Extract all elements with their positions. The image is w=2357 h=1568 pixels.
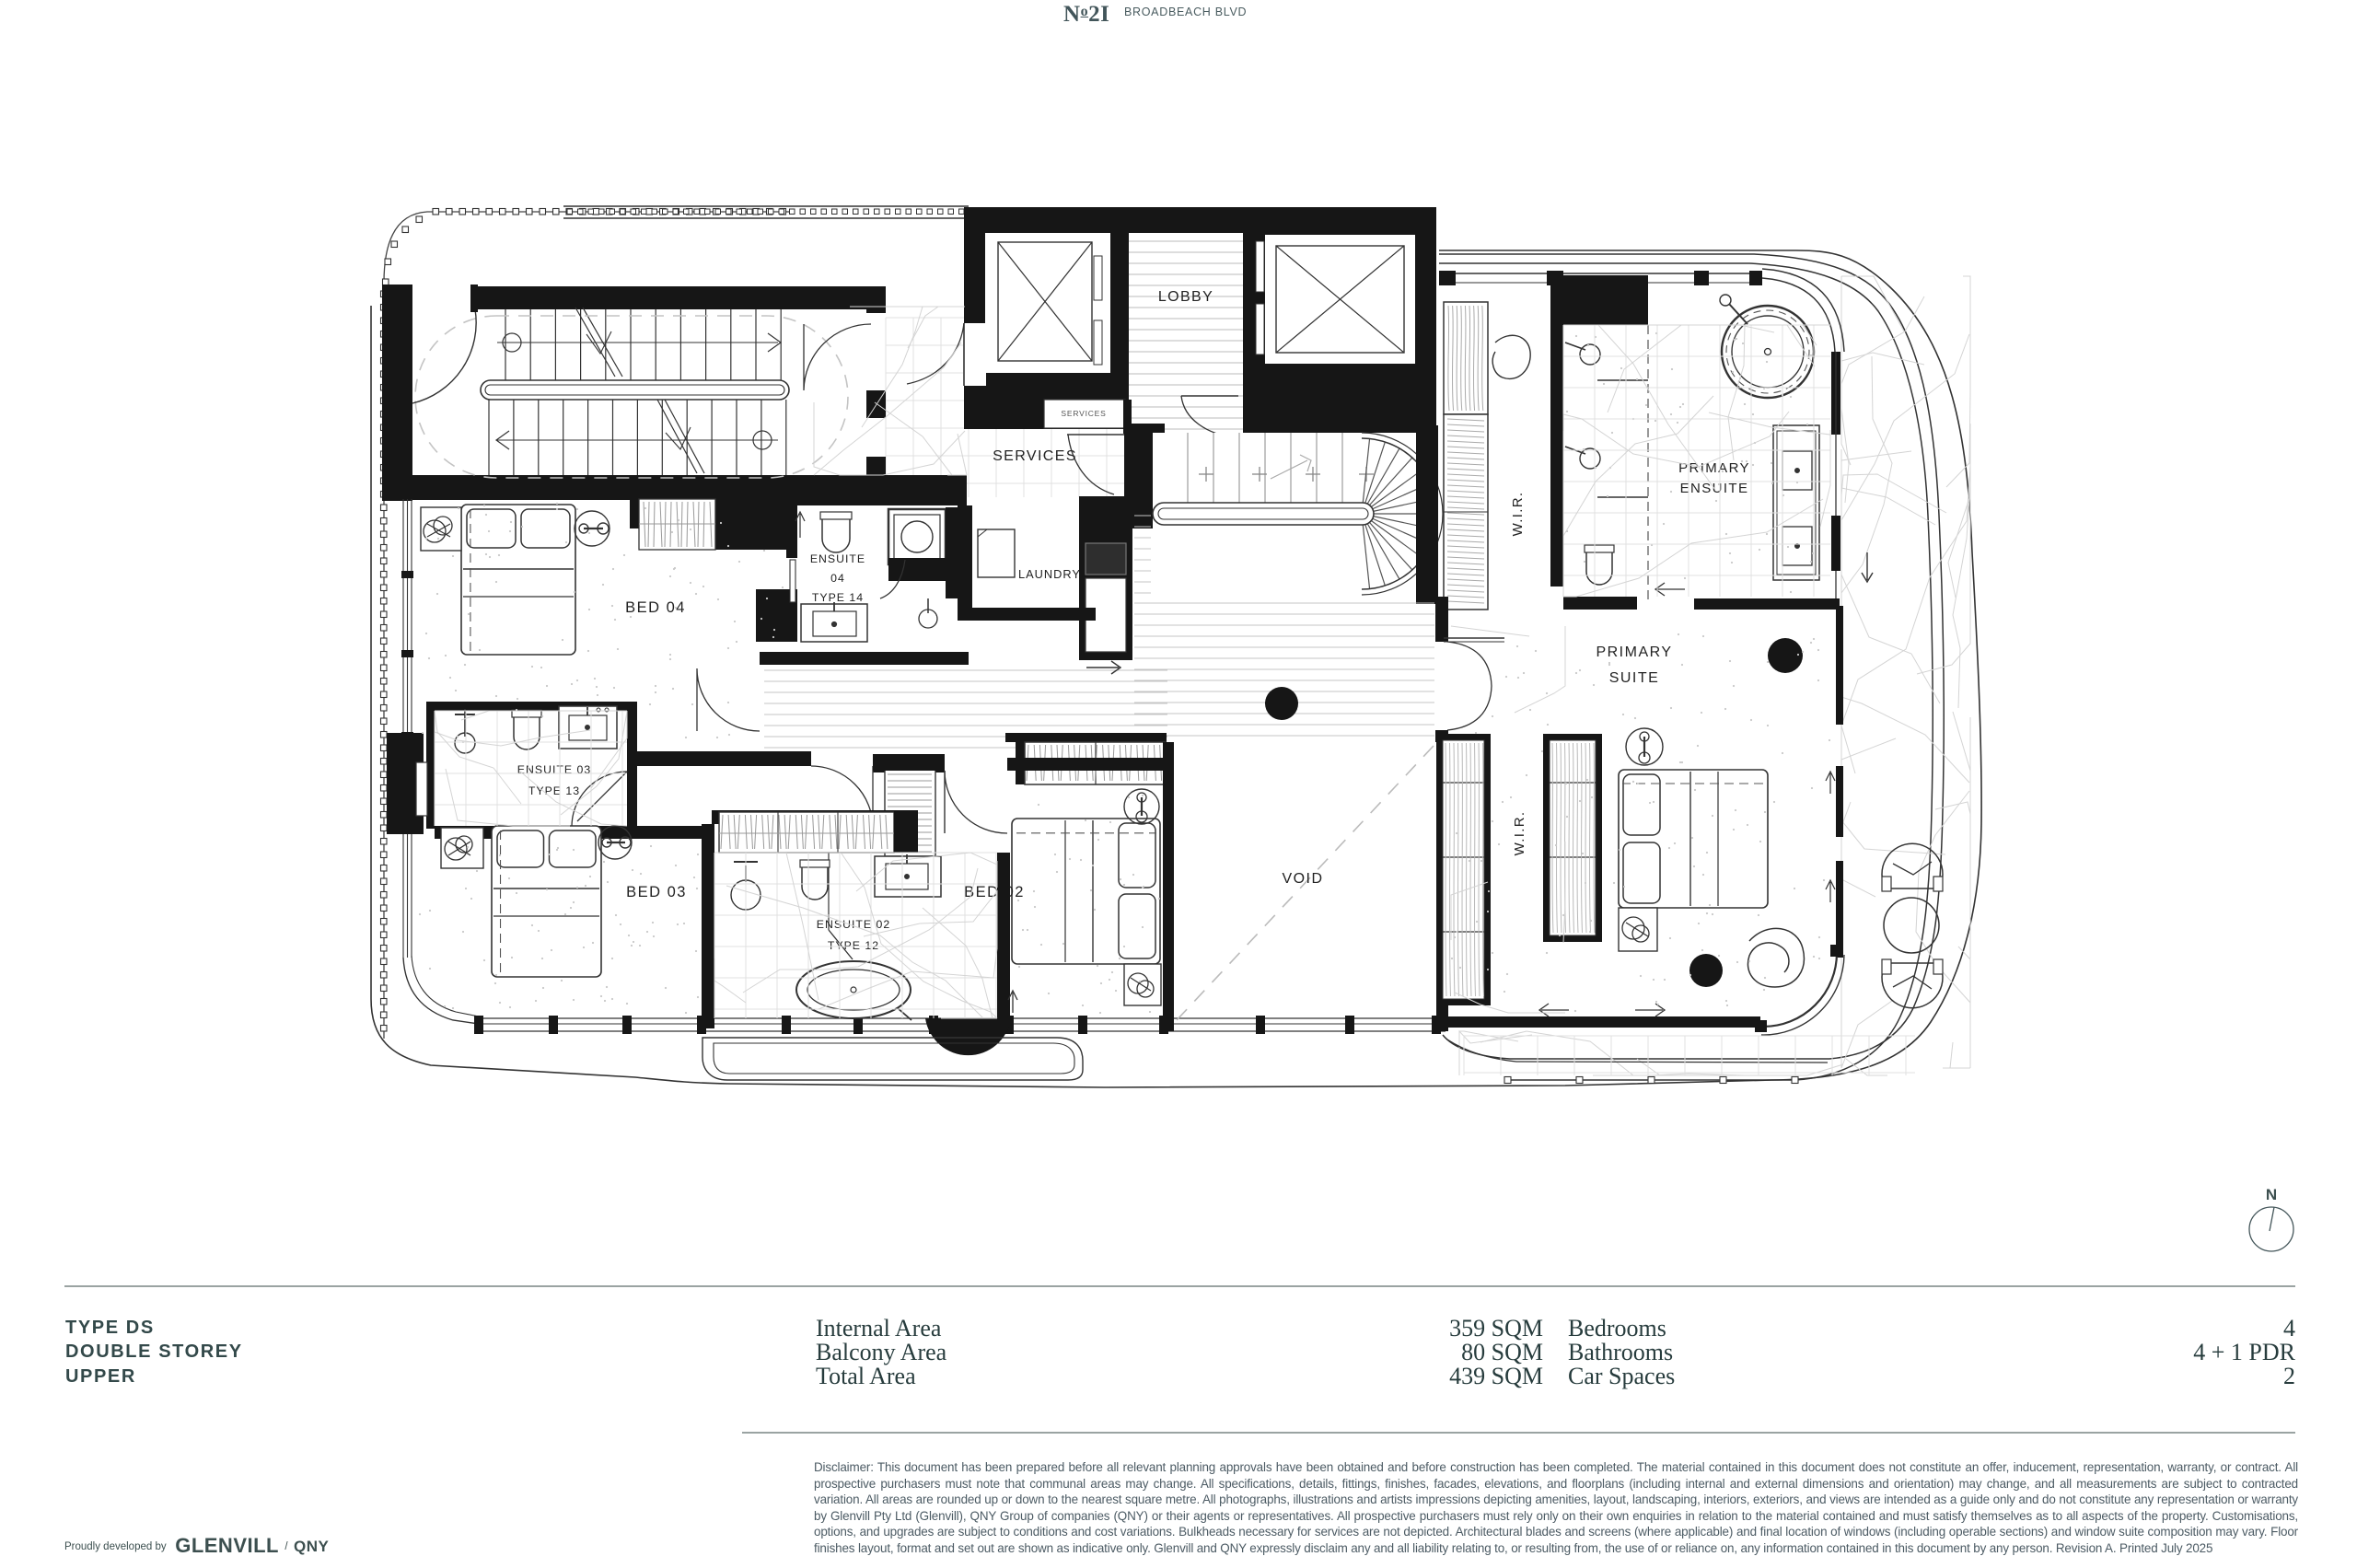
svg-text:W.I.R.: W.I.R. [1512,811,1527,856]
svg-text:SERVICES: SERVICES [1061,409,1106,418]
svg-text:ENSUITE 02: ENSUITE 02 [817,918,890,931]
svg-text:PRIMARY: PRIMARY [1596,645,1672,660]
svg-text:ENSUITE: ENSUITE [810,552,865,565]
svg-text:04: 04 [830,572,845,585]
svg-text:TYPE 14: TYPE 14 [812,591,864,604]
svg-text:W.I.R.: W.I.R. [1510,492,1526,537]
svg-text:LOBBY: LOBBY [1158,289,1213,305]
svg-text:TYPE 12: TYPE 12 [828,939,879,952]
svg-text:PRIMARY: PRIMARY [1678,460,1750,476]
svg-text:SUITE: SUITE [1609,670,1660,686]
svg-text:SERVICES: SERVICES [993,448,1077,464]
svg-text:N: N [2266,1186,2277,1203]
svg-text:VOID: VOID [1282,871,1323,887]
svg-text:BED 03: BED 03 [626,884,687,900]
svg-text:LAUNDRY: LAUNDRY [1018,567,1081,581]
svg-text:TYPE 13: TYPE 13 [528,784,580,797]
